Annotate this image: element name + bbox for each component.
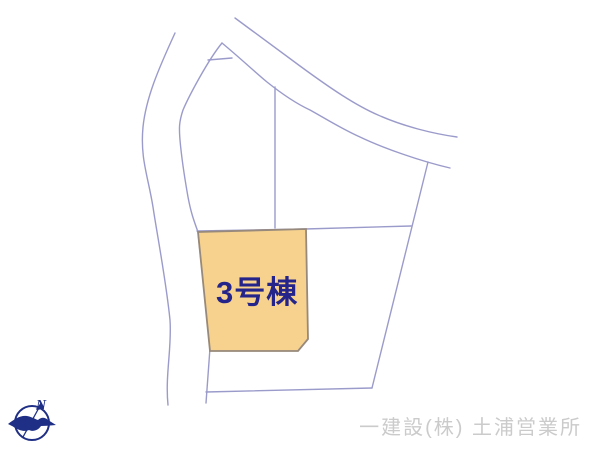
compass-icon: N <box>8 398 56 440</box>
road-edge-northeast-lower <box>222 43 450 168</box>
lot-label: 3号棟 <box>216 275 298 310</box>
plot-map-drawing: 3号棟 N <box>0 0 600 450</box>
east-boundary <box>372 162 428 388</box>
road-edge-west-outer <box>142 33 175 405</box>
road-edge-northeast-upper <box>235 18 457 137</box>
lower-horizontal-boundary <box>206 388 372 392</box>
company-credit: 一建設(株) 土浦営業所 <box>359 411 582 440</box>
compass-north-label: N <box>35 398 47 413</box>
plot-map: 3号棟 N 一建設(株) 土浦営業所 <box>0 0 600 450</box>
